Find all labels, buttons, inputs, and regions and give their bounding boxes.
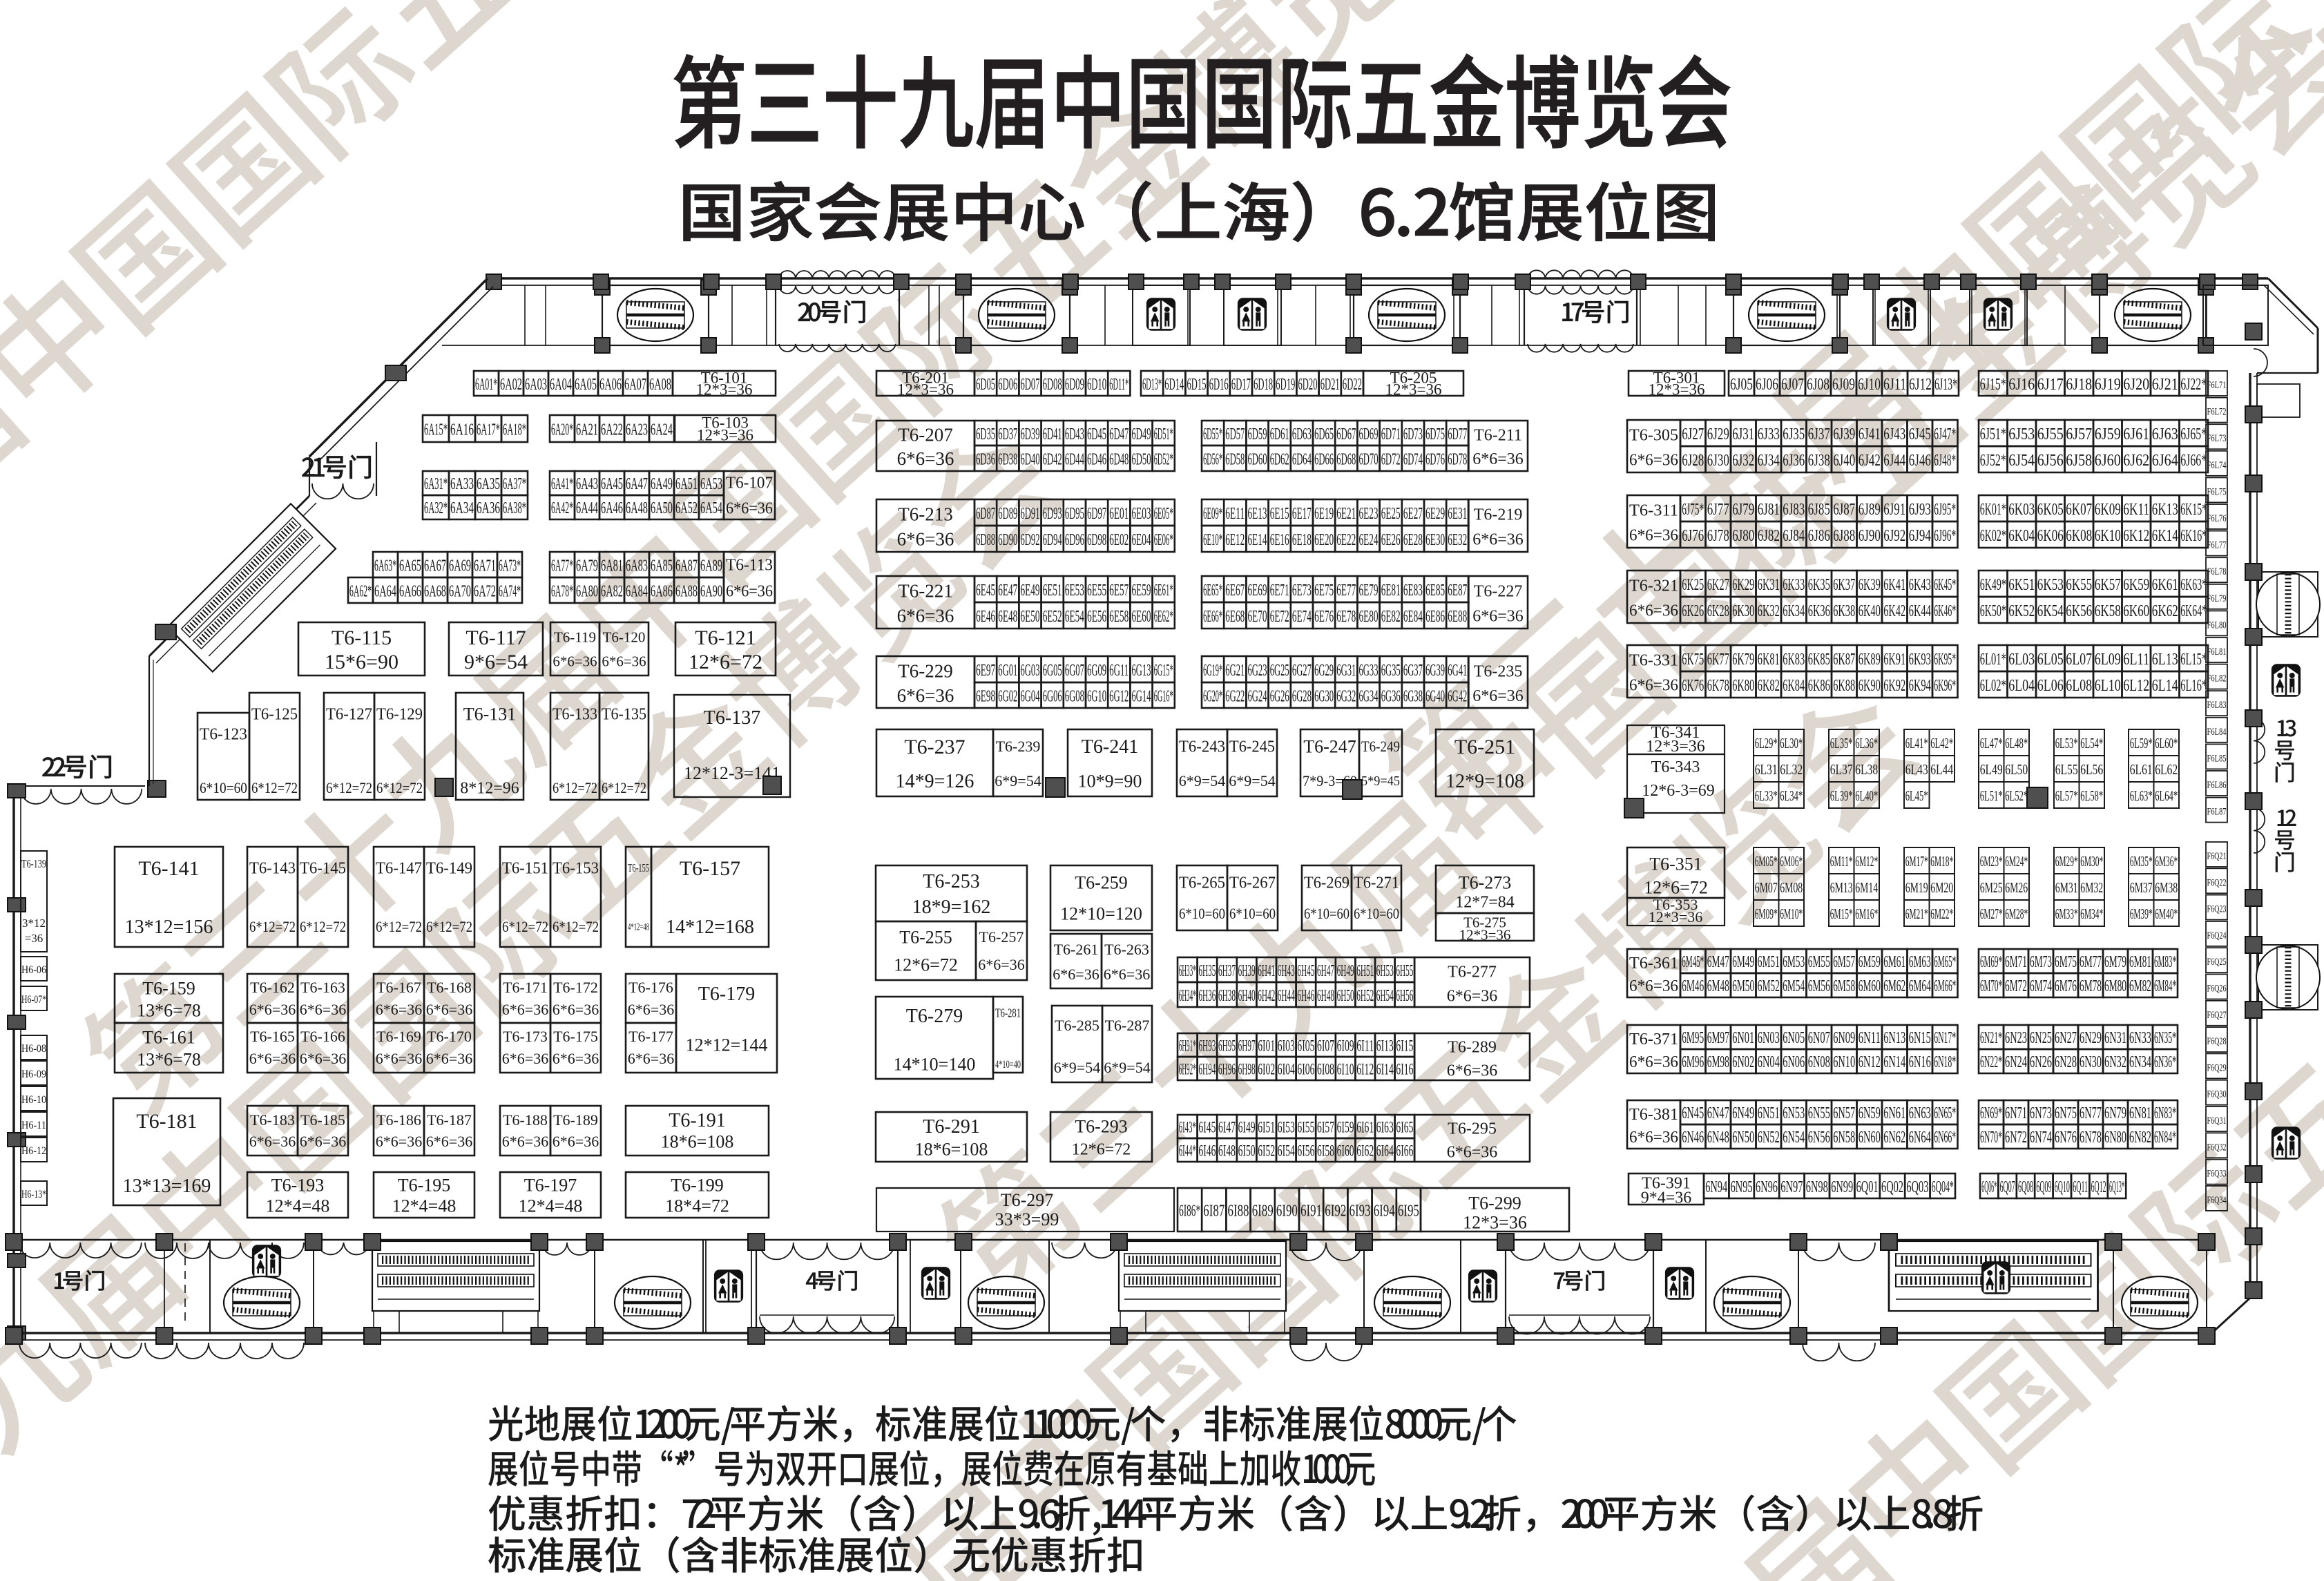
- svg-text:6*6=36: 6*6=36: [300, 1001, 346, 1018]
- svg-text:6M13: 6M13: [1830, 879, 1853, 896]
- svg-text:6N22*: 6N22*: [1980, 1053, 2002, 1071]
- svg-text:6N56: 6N56: [1808, 1129, 1830, 1147]
- svg-text:6K07: 6K07: [2066, 501, 2092, 519]
- svg-text:6A69: 6A69: [449, 557, 471, 575]
- svg-text:6D06: 6D06: [998, 376, 1017, 394]
- svg-text:6L35*: 6L35*: [1830, 735, 1853, 751]
- svg-text:6A79: 6A79: [576, 557, 598, 575]
- svg-text:T6-361: T6-361: [1629, 955, 1678, 972]
- svg-text:F6L75: F6L75: [2207, 486, 2227, 497]
- svg-text:6*6=36: 6*6=36: [502, 1050, 548, 1067]
- svg-text:6*12=72: 6*12=72: [326, 779, 372, 796]
- svg-text:6N66*: 6N66*: [1934, 1129, 1956, 1147]
- svg-text:6N81: 6N81: [2129, 1104, 2151, 1122]
- svg-text:6H41: 6H41: [1258, 962, 1275, 980]
- svg-text:6N03: 6N03: [1758, 1029, 1780, 1047]
- svg-text:6H51: 6H51: [1356, 962, 1374, 980]
- svg-text:6N29: 6N29: [2080, 1029, 2102, 1047]
- svg-text:6M37: 6M37: [2130, 879, 2153, 896]
- svg-text:4*10=40: 4*10=40: [995, 1059, 1021, 1071]
- svg-text:6E72: 6E72: [1270, 608, 1289, 626]
- svg-text:6*12=72: 6*12=72: [602, 779, 646, 796]
- svg-text:6M54: 6M54: [1783, 977, 1805, 995]
- svg-text:T6-129: T6-129: [376, 706, 423, 724]
- svg-text:6L16*: 6L16*: [2180, 677, 2207, 695]
- svg-text:6L62: 6L62: [2155, 761, 2178, 778]
- svg-text:6H56: 6H56: [1396, 987, 1413, 1005]
- svg-text:6J15*: 6J15*: [1980, 376, 2006, 394]
- svg-text:6N35*: 6N35*: [2154, 1029, 2176, 1047]
- svg-text:6K35: 6K35: [1808, 576, 1830, 594]
- svg-text:6L13: 6L13: [2152, 651, 2178, 669]
- svg-text:T6-351: T6-351: [1649, 854, 1702, 874]
- svg-text:6M70*: 6M70*: [1980, 977, 2002, 995]
- svg-text:6J65*: 6J65*: [2180, 425, 2207, 443]
- svg-text:6N13: 6N13: [1883, 1029, 1905, 1047]
- svg-text:6K12: 6K12: [2123, 527, 2149, 545]
- svg-text:6G12: 6G12: [1109, 687, 1129, 705]
- svg-text:F6Q30: F6Q30: [2207, 1089, 2227, 1100]
- svg-text:F6L84: F6L84: [2207, 727, 2227, 738]
- svg-text:6N17*: 6N17*: [1934, 1029, 1956, 1047]
- svg-text:6K91: 6K91: [1883, 651, 1905, 669]
- svg-text:F6L79: F6L79: [2207, 593, 2227, 604]
- svg-text:6J60: 6J60: [2095, 452, 2121, 470]
- svg-text:6I12: 6I12: [1356, 1060, 1374, 1077]
- svg-text:6A49: 6A49: [651, 475, 673, 493]
- svg-text:6A83: 6A83: [626, 557, 648, 575]
- svg-text:6D71: 6D71: [1381, 425, 1401, 443]
- svg-text:6*6=36: 6*6=36: [426, 1133, 472, 1150]
- svg-text:6H96: 6H96: [1218, 1060, 1236, 1077]
- svg-text:6N72: 6N72: [2005, 1129, 2027, 1147]
- svg-text:6M33*: 6M33*: [2055, 906, 2078, 922]
- svg-text:6M29*: 6M29*: [2055, 853, 2078, 870]
- svg-text:6G32: 6G32: [1336, 687, 1356, 705]
- svg-text:T6-107: T6-107: [726, 475, 773, 492]
- svg-text:6N83*: 6N83*: [2154, 1104, 2176, 1122]
- svg-text:14*10=140: 14*10=140: [894, 1054, 976, 1074]
- svg-text:6N15: 6N15: [1909, 1029, 1931, 1047]
- svg-text:T6-255: T6-255: [899, 927, 952, 947]
- svg-text:6M09*: 6M09*: [1755, 906, 1778, 922]
- svg-text:6A38*: 6A38*: [503, 499, 526, 517]
- svg-text:6E78: 6E78: [1336, 608, 1356, 626]
- svg-text:6K58: 6K58: [2095, 602, 2121, 620]
- svg-text:6D94: 6D94: [1043, 531, 1062, 549]
- svg-text:6H42: 6H42: [1258, 987, 1275, 1005]
- svg-text:T6-265: T6-265: [1179, 874, 1225, 892]
- svg-text:6K75: 6K75: [1682, 651, 1704, 669]
- svg-text:T6-239: T6-239: [996, 738, 1041, 755]
- svg-text:6H54: 6H54: [1376, 987, 1394, 1005]
- svg-text:6N30: 6N30: [2080, 1053, 2102, 1071]
- svg-text:6D43: 6D43: [1065, 425, 1084, 443]
- svg-text:6H55: 6H55: [1396, 962, 1413, 980]
- svg-text:6G24: 6G24: [1248, 687, 1267, 705]
- svg-text:6G09: 6G09: [1087, 662, 1106, 680]
- svg-text:6D44: 6D44: [1065, 450, 1084, 468]
- svg-text:6M63: 6M63: [1909, 953, 1931, 971]
- svg-text:6*10=60: 6*10=60: [200, 779, 247, 796]
- svg-text:6A22: 6A22: [601, 421, 623, 439]
- svg-text:6I09: 6I09: [1337, 1037, 1354, 1054]
- svg-text:6J66*: 6J66*: [2180, 452, 2207, 470]
- svg-text:6K37: 6K37: [1833, 576, 1855, 594]
- svg-text:6A50: 6A50: [651, 499, 673, 517]
- svg-text:T6-243: T6-243: [1179, 738, 1225, 756]
- svg-text:6M14: 6M14: [1855, 879, 1878, 896]
- svg-text:6H37: 6H37: [1218, 962, 1236, 980]
- svg-text:6L55: 6L55: [2055, 761, 2078, 778]
- svg-text:6D68: 6D68: [1336, 450, 1356, 468]
- svg-text:6*9=54: 6*9=54: [1104, 1059, 1150, 1076]
- svg-text:6E67: 6E67: [1225, 582, 1245, 600]
- svg-text:T6-163: T6-163: [300, 979, 345, 996]
- svg-text:6K11: 6K11: [2123, 501, 2149, 519]
- svg-text:6M75: 6M75: [2055, 953, 2077, 971]
- svg-text:T6-191: T6-191: [669, 1110, 725, 1131]
- svg-text:6J80: 6J80: [1732, 527, 1754, 545]
- svg-text:6J08: 6J08: [1807, 376, 1830, 394]
- svg-text:6M40*: 6M40*: [2155, 906, 2178, 922]
- svg-text:6M56: 6M56: [1808, 977, 1830, 995]
- svg-text:6G38: 6G38: [1403, 687, 1423, 705]
- svg-text:6N02: 6N02: [1732, 1053, 1754, 1071]
- svg-text:6J40: 6J40: [1833, 452, 1855, 470]
- svg-text:6E23: 6E23: [1359, 505, 1379, 523]
- svg-text:6Q10: 6Q10: [2055, 1178, 2070, 1196]
- svg-text:6N99: 6N99: [1831, 1178, 1853, 1196]
- svg-text:6L01*: 6L01*: [1980, 651, 2006, 669]
- svg-text:6L39*: 6L39*: [1830, 787, 1853, 804]
- svg-text:6*6=36: 6*6=36: [1472, 687, 1524, 705]
- svg-text:6N52: 6N52: [1758, 1129, 1780, 1147]
- svg-text:6J62: 6J62: [2123, 452, 2149, 470]
- svg-text:6I48: 6I48: [1218, 1142, 1236, 1159]
- svg-text:F6L81: F6L81: [2207, 646, 2227, 658]
- svg-text:6K38: 6K38: [1833, 602, 1855, 620]
- svg-text:6L42*: 6L42*: [1930, 735, 1953, 751]
- svg-text:6N57: 6N57: [1833, 1104, 1855, 1122]
- svg-text:T6-185: T6-185: [300, 1111, 345, 1129]
- svg-text:6I07: 6I07: [1317, 1037, 1334, 1054]
- svg-text:6J21: 6J21: [2152, 376, 2178, 394]
- svg-text:6J82: 6J82: [1758, 527, 1780, 545]
- svg-text:6I88: 6I88: [1228, 1202, 1249, 1220]
- svg-text:6E85: 6E85: [1425, 582, 1445, 600]
- svg-text:6A90: 6A90: [700, 582, 722, 600]
- svg-text:6K14: 6K14: [2152, 527, 2178, 545]
- svg-text:6E82: 6E82: [1381, 608, 1401, 626]
- svg-text:6A66: 6A66: [399, 582, 421, 600]
- svg-text:6L47*: 6L47*: [1980, 735, 2003, 751]
- svg-text:6*6=36: 6*6=36: [426, 1050, 472, 1067]
- svg-text:T6-281: T6-281: [995, 1006, 1021, 1020]
- svg-text:T6-187: T6-187: [427, 1111, 472, 1129]
- svg-text:6A32*: 6A32*: [424, 499, 448, 517]
- svg-text:6K34: 6K34: [1783, 602, 1805, 620]
- svg-text:6H95: 6H95: [1218, 1037, 1236, 1054]
- svg-text:6D38: 6D38: [998, 450, 1017, 468]
- svg-text:T6-149: T6-149: [426, 860, 472, 878]
- svg-text:6H33*: 6H33*: [1179, 962, 1196, 980]
- svg-text:6E49: 6E49: [1021, 582, 1040, 600]
- svg-text:6N21*: 6N21*: [1980, 1029, 2002, 1047]
- svg-text:T6-169: T6-169: [376, 1028, 421, 1045]
- svg-text:6N06: 6N06: [1783, 1053, 1805, 1071]
- svg-text:6N78: 6N78: [2080, 1129, 2102, 1147]
- svg-text:6D74: 6D74: [1403, 450, 1423, 468]
- svg-text:6*10=60: 6*10=60: [1354, 905, 1399, 922]
- svg-text:H6-10: H6-10: [21, 1094, 46, 1106]
- svg-text:6J34: 6J34: [1758, 452, 1780, 470]
- svg-text:6N04: 6N04: [1758, 1053, 1780, 1071]
- svg-text:6A16: 6A16: [450, 421, 474, 439]
- svg-text:5*9=45: 5*9=45: [1361, 774, 1400, 789]
- svg-text:6A72: 6A72: [474, 582, 496, 600]
- svg-text:6E45: 6E45: [976, 582, 995, 600]
- svg-text:6G01: 6G01: [998, 662, 1017, 680]
- svg-text:6N25: 6N25: [2030, 1029, 2052, 1047]
- svg-text:6L38: 6L38: [1855, 761, 1878, 778]
- svg-text:6G02: 6G02: [998, 687, 1017, 705]
- svg-text:T6-251: T6-251: [1454, 736, 1515, 758]
- svg-text:6D56*: 6D56*: [1203, 450, 1222, 468]
- svg-text:F6Q23: F6Q23: [2207, 904, 2227, 915]
- svg-text:6*6=36: 6*6=36: [1629, 677, 1678, 695]
- svg-text:T6-177: T6-177: [628, 1028, 673, 1045]
- svg-text:6I86*: 6I86*: [1179, 1202, 1200, 1220]
- svg-text:6A21: 6A21: [576, 421, 598, 439]
- svg-text:6A85: 6A85: [651, 557, 673, 575]
- svg-text:6A35: 6A35: [477, 475, 500, 493]
- svg-text:T6-211: T6-211: [1474, 426, 1522, 444]
- svg-text:6M61: 6M61: [1883, 953, 1905, 971]
- svg-text:6I45: 6I45: [1198, 1118, 1216, 1136]
- svg-text:6H35: 6H35: [1198, 962, 1216, 980]
- svg-text:6J46: 6J46: [1909, 452, 1931, 470]
- svg-text:6I58: 6I58: [1317, 1142, 1334, 1159]
- svg-text:6L40*: 6L40*: [1855, 787, 1878, 804]
- svg-text:T6-123: T6-123: [200, 726, 247, 744]
- svg-text:12*3=36: 12*3=36: [696, 381, 753, 398]
- svg-text:T6-176: T6-176: [628, 979, 673, 996]
- svg-text:6J29: 6J29: [1707, 425, 1729, 443]
- svg-text:6J57: 6J57: [2066, 425, 2092, 443]
- svg-text:6D91: 6D91: [1021, 505, 1040, 523]
- svg-text:6M16*: 6M16*: [1855, 906, 1878, 922]
- svg-text:6M50: 6M50: [1732, 977, 1754, 995]
- svg-text:6G34: 6G34: [1359, 687, 1379, 705]
- svg-text:6M73: 6M73: [2030, 953, 2052, 971]
- svg-text:T6-311: T6-311: [1629, 502, 1678, 520]
- svg-text:6L08: 6L08: [2066, 677, 2092, 695]
- svg-text:6*12=72: 6*12=72: [251, 779, 298, 796]
- svg-text:6M05*: 6M05*: [1755, 853, 1778, 870]
- svg-text:6D05: 6D05: [976, 376, 995, 394]
- svg-text:6G28: 6G28: [1292, 687, 1312, 705]
- svg-text:6J06: 6J06: [1756, 376, 1778, 394]
- svg-text:6*6=36: 6*6=36: [628, 1001, 674, 1018]
- svg-text:6K55: 6K55: [2066, 576, 2092, 594]
- svg-text:6K16*: 6K16*: [2180, 527, 2207, 545]
- svg-text:6H98: 6H98: [1238, 1060, 1256, 1077]
- svg-text:6M78: 6M78: [2080, 977, 2102, 995]
- svg-text:6E31: 6E31: [1448, 505, 1467, 523]
- svg-text:6E17: 6E17: [1292, 505, 1312, 523]
- svg-text:6A68: 6A68: [424, 582, 446, 600]
- svg-text:6*12=72: 6*12=72: [376, 918, 422, 935]
- svg-text:6A45: 6A45: [601, 475, 623, 493]
- svg-text:6E54: 6E54: [1065, 608, 1084, 626]
- svg-text:12*3=36: 12*3=36: [897, 381, 954, 398]
- svg-text:6J37: 6J37: [1808, 425, 1830, 443]
- svg-text:6*6=36: 6*6=36: [897, 685, 954, 706]
- svg-text:6M19: 6M19: [1905, 879, 1928, 896]
- svg-text:6K64*: 6K64*: [2180, 602, 2207, 620]
- svg-text:6L45*: 6L45*: [1905, 787, 1928, 804]
- svg-text:6J76: 6J76: [1682, 527, 1704, 545]
- svg-text:6K27: 6K27: [1707, 576, 1729, 594]
- svg-text:6J86: 6J86: [1808, 527, 1830, 545]
- svg-text:T6-167: T6-167: [376, 979, 421, 996]
- svg-text:6D41: 6D41: [1043, 425, 1062, 443]
- svg-text:F6Q25: F6Q25: [2207, 957, 2227, 968]
- svg-text:6N75: 6N75: [2055, 1104, 2077, 1122]
- svg-text:6H53: 6H53: [1376, 962, 1394, 980]
- svg-text:6J39: 6J39: [1833, 425, 1855, 443]
- svg-text:T6-219: T6-219: [1474, 506, 1523, 524]
- svg-text:6J91: 6J91: [1883, 501, 1905, 519]
- svg-text:6K63*: 6K63*: [2180, 576, 2207, 594]
- svg-text:6*6=36: 6*6=36: [249, 1050, 296, 1067]
- svg-text:6I47: 6I47: [1218, 1118, 1236, 1136]
- svg-text:6A51: 6A51: [675, 475, 698, 493]
- svg-text:6K52: 6K52: [2008, 602, 2035, 620]
- svg-text:6E04: 6E04: [1132, 531, 1151, 549]
- svg-text:T6-151: T6-151: [502, 860, 548, 878]
- svg-text:6E52: 6E52: [1043, 608, 1062, 626]
- svg-text:6K49*: 6K49*: [1980, 576, 2006, 594]
- svg-text:6E75: 6E75: [1314, 582, 1334, 600]
- svg-text:6D93: 6D93: [1043, 505, 1062, 523]
- svg-text:6M49: 6M49: [1732, 953, 1754, 971]
- svg-text:6N24: 6N24: [2005, 1053, 2027, 1071]
- svg-text:6N84*: 6N84*: [2154, 1129, 2176, 1147]
- svg-text:6G10: 6G10: [1087, 687, 1106, 705]
- svg-text:6D14: 6D14: [1164, 376, 1184, 394]
- svg-text:6N62: 6N62: [1883, 1129, 1905, 1147]
- svg-text:6N34: 6N34: [2129, 1053, 2151, 1071]
- svg-text:6E60: 6E60: [1132, 608, 1151, 626]
- svg-text:T6-170: T6-170: [427, 1028, 472, 1045]
- svg-text:6N47: 6N47: [1707, 1104, 1729, 1122]
- svg-text:6K53: 6K53: [2037, 576, 2064, 594]
- svg-text:6D07: 6D07: [1021, 376, 1040, 394]
- svg-text:6E11: 6E11: [1225, 505, 1245, 523]
- svg-text:6N10: 6N10: [1833, 1053, 1855, 1071]
- svg-text:6J87: 6J87: [1833, 501, 1855, 519]
- svg-text:6I44*: 6I44*: [1179, 1142, 1196, 1159]
- svg-text:6E77: 6E77: [1336, 582, 1356, 600]
- svg-text:12*6-3=69: 12*6-3=69: [1642, 782, 1715, 800]
- svg-text:6J64: 6J64: [2152, 452, 2178, 470]
- svg-text:6N71: 6N71: [2005, 1104, 2027, 1122]
- svg-text:6A23: 6A23: [626, 421, 648, 439]
- svg-text:6D70: 6D70: [1359, 450, 1379, 468]
- svg-text:6J42: 6J42: [1859, 452, 1881, 470]
- svg-text:6E19: 6E19: [1314, 505, 1334, 523]
- svg-text:6J92: 6J92: [1883, 527, 1905, 545]
- svg-text:12*3=36: 12*3=36: [1646, 738, 1705, 756]
- svg-text:6I90: 6I90: [1276, 1202, 1298, 1220]
- svg-text:8*12=96: 8*12=96: [460, 780, 519, 798]
- svg-text:6*6=36: 6*6=36: [897, 448, 954, 469]
- svg-text:6*6=36: 6*6=36: [1447, 1144, 1498, 1162]
- svg-text:6N09: 6N09: [1833, 1029, 1855, 1047]
- svg-text:6L48*: 6L48*: [2005, 735, 2028, 751]
- svg-text:18*4=72: 18*4=72: [665, 1196, 729, 1216]
- svg-text:6J56: 6J56: [2037, 452, 2064, 470]
- svg-text:6*12=72: 6*12=72: [300, 918, 346, 935]
- svg-text:F6L77: F6L77: [2207, 540, 2227, 551]
- svg-text:6A43: 6A43: [576, 475, 598, 493]
- svg-text:6L61: 6L61: [2130, 761, 2153, 778]
- svg-text:6D51*: 6D51*: [1154, 425, 1173, 443]
- svg-text:6L49: 6L49: [1980, 761, 2003, 778]
- svg-text:6I57: 6I57: [1317, 1118, 1334, 1136]
- svg-text:6D92: 6D92: [1021, 531, 1040, 549]
- svg-text:6D09: 6D09: [1065, 376, 1084, 394]
- svg-text:6K41: 6K41: [1883, 576, 1905, 594]
- svg-text:6K93: 6K93: [1909, 651, 1931, 669]
- svg-text:T6-127: T6-127: [326, 706, 372, 724]
- svg-text:6A47: 6A47: [626, 475, 648, 493]
- svg-text:6A63*: 6A63*: [374, 557, 396, 575]
- svg-text:6L14: 6L14: [2152, 677, 2178, 695]
- svg-text:T6-279: T6-279: [906, 1006, 963, 1027]
- svg-text:6*6=36: 6*6=36: [1629, 977, 1678, 995]
- svg-text:T6-157: T6-157: [680, 857, 740, 880]
- svg-text:6N11: 6N11: [1859, 1029, 1881, 1047]
- svg-text:6*6=36: 6*6=36: [602, 653, 646, 670]
- svg-text:T6-247: T6-247: [1303, 736, 1356, 756]
- svg-text:6M07: 6M07: [1755, 879, 1778, 896]
- svg-text:T6-289: T6-289: [1448, 1039, 1497, 1057]
- svg-text:12*3=36: 12*3=36: [1385, 381, 1442, 398]
- svg-text:6L34*: 6L34*: [1780, 787, 1803, 804]
- svg-text:T6-119: T6-119: [554, 629, 596, 646]
- svg-text:6K44: 6K44: [1909, 602, 1931, 620]
- svg-text:6D97: 6D97: [1087, 505, 1106, 523]
- svg-text:6J61: 6J61: [2123, 425, 2149, 443]
- svg-text:T6-173: T6-173: [503, 1028, 548, 1045]
- svg-text:F6Q31: F6Q31: [2207, 1115, 2227, 1127]
- svg-text:6H45: 6H45: [1297, 962, 1314, 980]
- svg-text:6K92: 6K92: [1883, 677, 1905, 695]
- svg-text:6E59: 6E59: [1132, 582, 1151, 600]
- svg-text:6M20: 6M20: [1930, 879, 1953, 896]
- svg-text:6M12*: 6M12*: [1855, 853, 1878, 870]
- svg-text:6K15*: 6K15*: [2180, 501, 2207, 519]
- svg-text:6G42: 6G42: [1448, 687, 1467, 705]
- svg-text:13*12=156: 13*12=156: [125, 917, 213, 938]
- svg-text:6E14: 6E14: [1248, 531, 1267, 549]
- svg-text:6*6=36: 6*6=36: [249, 1133, 296, 1150]
- svg-text:6K39: 6K39: [1859, 576, 1881, 594]
- svg-text:6A87: 6A87: [675, 557, 698, 575]
